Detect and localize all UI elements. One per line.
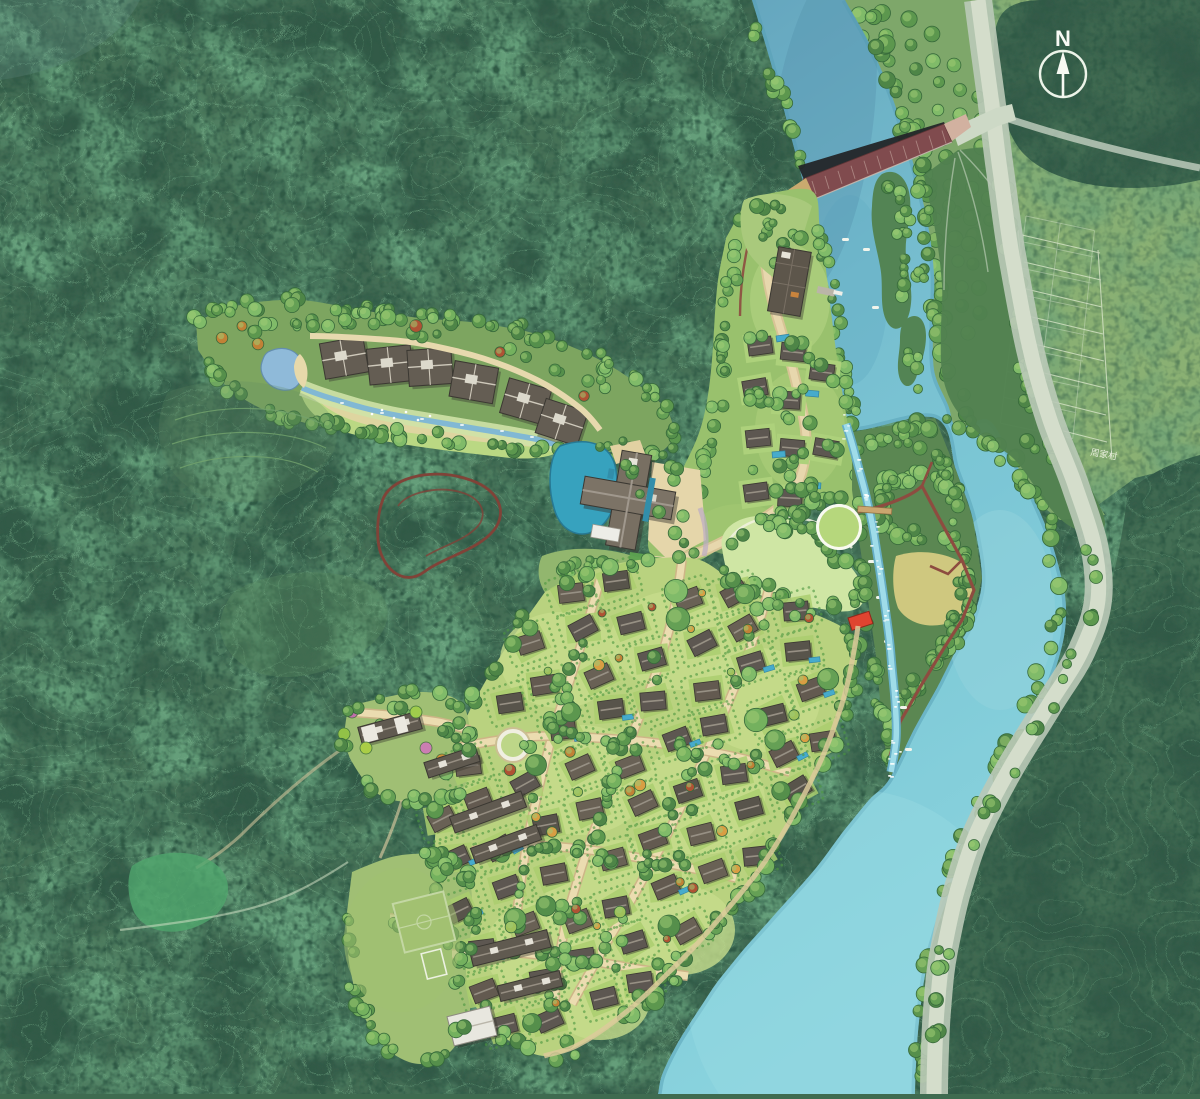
svg-text:N: N [1055,26,1071,51]
